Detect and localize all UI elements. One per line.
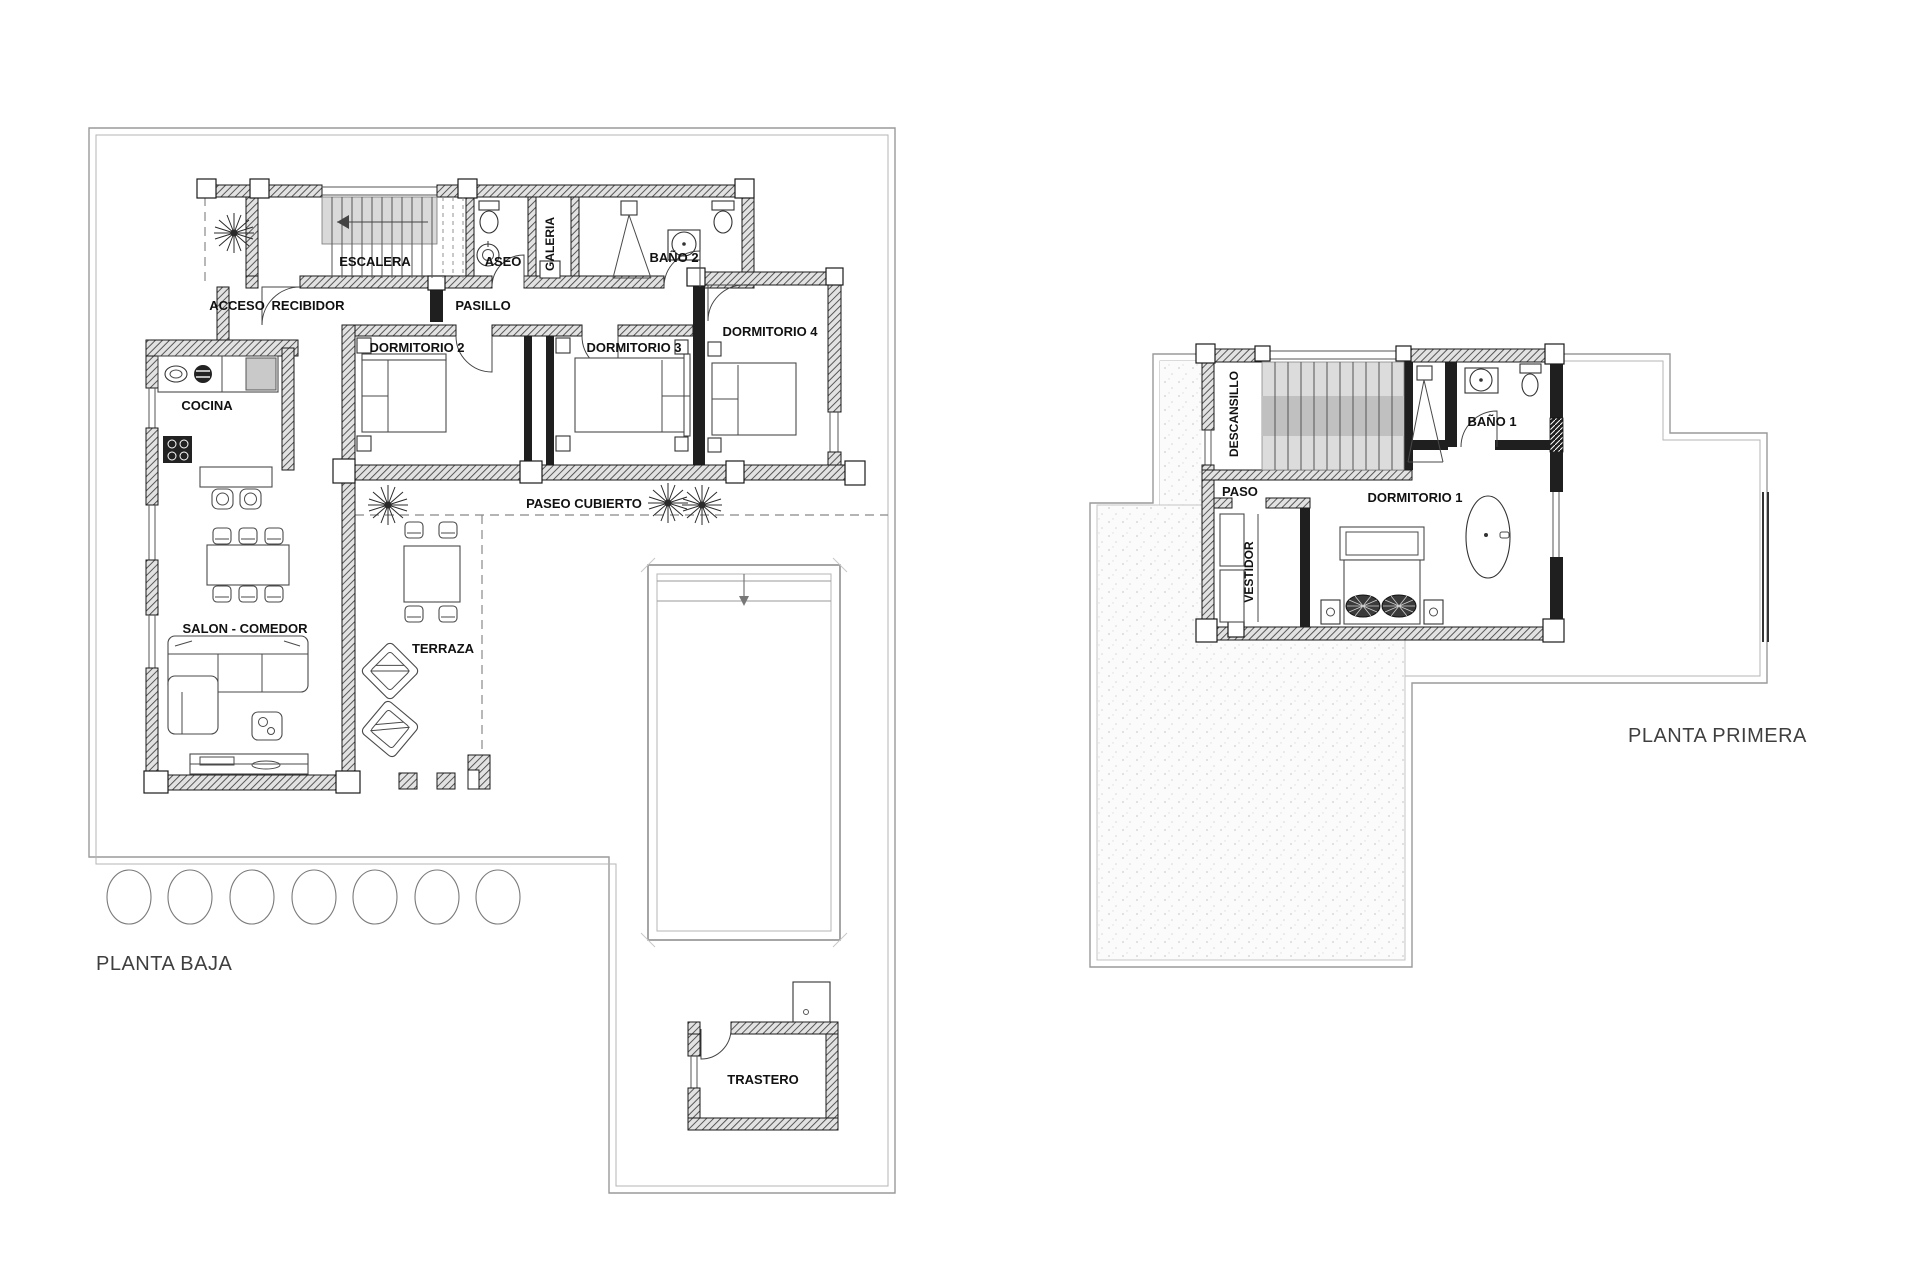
label-vestidor: VESTIDOR	[1242, 541, 1256, 603]
window-dorm4	[830, 412, 838, 452]
label-salon-comedor: SALON - COMEDOR	[183, 621, 309, 636]
ground-floor-plan: ESCALERA ASEO GALERIA BAÑO 2 ACCESO RECI…	[89, 128, 895, 1193]
sofa	[168, 636, 308, 734]
label-descansillo: DESCANSILLO	[1227, 371, 1241, 457]
first-floor-plan: DESCANSILLO BAÑO 1 PASO DORMITORIO 1 VES…	[1090, 344, 1807, 967]
label-dormitorio2: DORMITORIO 2	[369, 340, 464, 355]
label-aseo: ASEO	[485, 254, 522, 269]
ground-floor-title: PLANTA BAJA	[96, 953, 232, 975]
label-paso: PASO	[1222, 484, 1258, 499]
label-acceso: ACCESO	[209, 298, 265, 313]
bed-dorm3	[575, 354, 690, 436]
tree-circles	[107, 870, 520, 924]
terrace-window-bar	[1763, 492, 1768, 642]
bed-dorm2	[362, 354, 446, 432]
label-trastero: TRASTERO	[727, 1072, 799, 1087]
label-dormitorio4: DORMITORIO 4	[722, 324, 818, 339]
label-galeria: GALERIA	[543, 217, 557, 271]
label-cocina: COCINA	[181, 398, 233, 413]
kitchen-hob	[163, 436, 192, 463]
kitchen-peninsula	[200, 467, 272, 487]
side-table	[252, 712, 282, 740]
label-pasillo: PASILLO	[455, 298, 510, 313]
bathtub	[1466, 496, 1510, 578]
pool	[641, 558, 847, 947]
stipple-strip	[1160, 361, 1202, 509]
paver-step	[468, 755, 490, 789]
label-escalera: ESCALERA	[339, 254, 411, 269]
window-cocina	[149, 388, 155, 428]
bed-dorm4	[712, 363, 796, 435]
floorplan-drawing: ESCALERA ASEO GALERIA BAÑO 2 ACCESO RECI…	[0, 0, 1920, 1280]
bano2-fixtures	[613, 201, 734, 278]
dorm4-door	[708, 285, 744, 321]
window-top-stairs	[322, 187, 437, 195]
floorplan-sheet: ESCALERA ASEO GALERIA BAÑO 2 ACCESO RECI…	[0, 0, 1920, 1280]
label-dormitorio3: DORMITORIO 3	[586, 340, 681, 355]
paver	[399, 773, 417, 789]
label-bano2: BAÑO 2	[649, 250, 698, 265]
tv-bench	[190, 754, 308, 774]
label-bano1: BAÑO 1	[1467, 414, 1516, 429]
label-terraza: TERRAZA	[412, 641, 475, 656]
label-dormitorio1: DORMITORIO 1	[1367, 490, 1462, 505]
kitchen-stools	[212, 489, 261, 509]
window-salon-2	[149, 615, 155, 668]
trastero-room	[688, 982, 838, 1130]
label-paseo-cubierto: PASEO CUBIERTO	[526, 496, 642, 511]
terraza-table	[404, 522, 460, 622]
dining-table	[207, 528, 289, 602]
window-salon-1	[149, 505, 155, 560]
label-recibidor: RECIBIDOR	[272, 298, 346, 313]
paver	[437, 773, 455, 789]
stairs-first	[1262, 362, 1404, 470]
first-floor-title: PLANTA PRIMERA	[1628, 725, 1807, 747]
kitchen-counter	[158, 356, 278, 392]
